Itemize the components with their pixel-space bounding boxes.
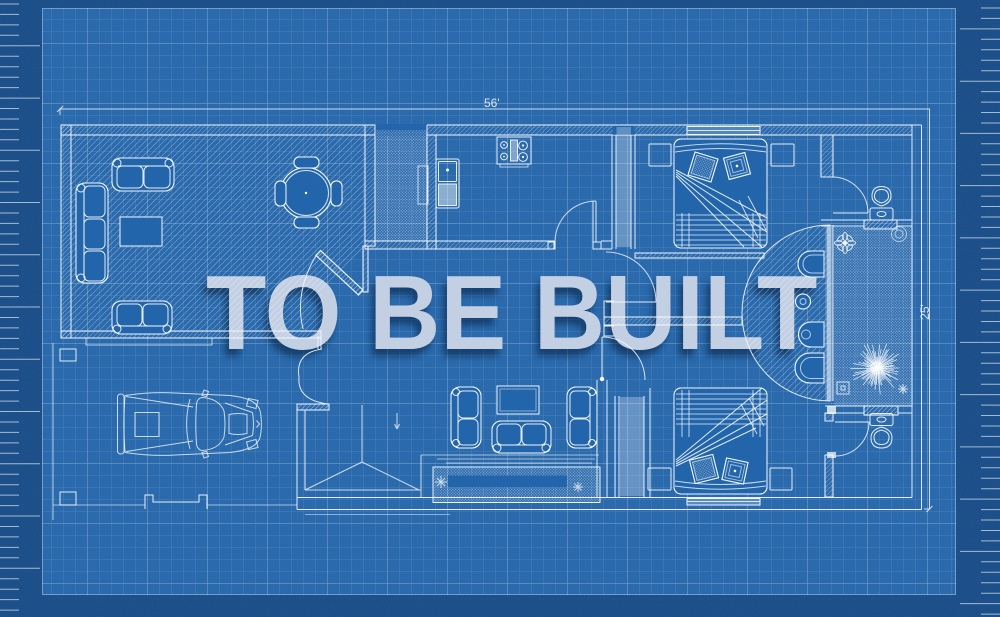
svg-text:25': 25' (918, 304, 932, 320)
svg-text:56': 56' (484, 96, 500, 110)
